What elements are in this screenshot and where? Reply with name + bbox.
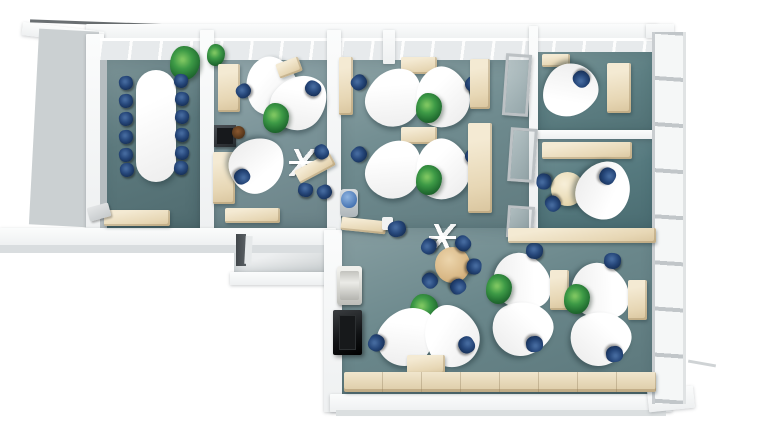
- mid-wall-cabinet: [508, 228, 656, 243]
- exterior-ground-line: [688, 360, 716, 368]
- seated-person: [232, 126, 245, 139]
- open-space-cabinet: [468, 123, 492, 213]
- office1-cabinet: [607, 63, 631, 113]
- east-window-wall: [652, 32, 686, 404]
- open-space-cabinet: [470, 59, 490, 109]
- entrance-door-leaf: [244, 236, 252, 264]
- meeting-table: [435, 247, 470, 283]
- shared-office-sideboard: [225, 208, 280, 223]
- partition-shelf: [507, 127, 538, 183]
- conference-table: [136, 70, 176, 182]
- partition-shelf: [502, 53, 532, 117]
- conference-sideboard: [104, 210, 170, 226]
- south-west-wall: [0, 228, 336, 246]
- floorplan-scene: [0, 0, 768, 432]
- top-door-pillar: [383, 30, 395, 64]
- office2-cabinet: [542, 142, 632, 159]
- south-wall-cabinet-run: [344, 372, 656, 392]
- printer-cabinet: [333, 310, 362, 355]
- vestibule-south-wall: [230, 272, 336, 285]
- wall-office-divider: [536, 130, 658, 139]
- south-west-wall-edge: [0, 245, 336, 253]
- copier: [337, 266, 362, 305]
- south-wall-edge: [336, 410, 666, 416]
- water-cooler: [340, 189, 358, 217]
- desk-pedestal: [628, 280, 647, 320]
